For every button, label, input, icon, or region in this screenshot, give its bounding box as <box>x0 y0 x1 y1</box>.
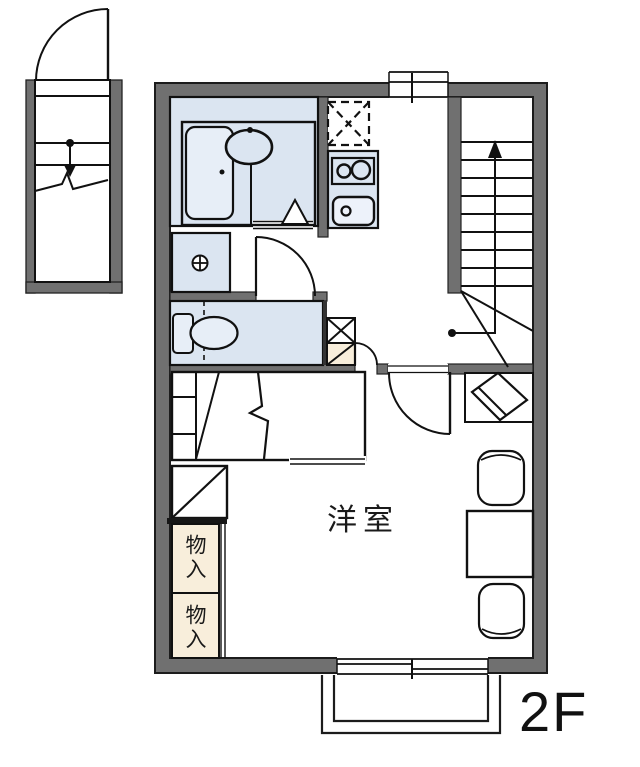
table-icon <box>467 511 533 577</box>
toilet-icon <box>191 317 238 349</box>
winder-step-line <box>461 291 533 331</box>
western-room-entry <box>388 364 450 434</box>
bathtub-icon <box>186 127 233 219</box>
room-label-western: 洋室 <box>327 506 399 536</box>
winder-step-line <box>461 291 508 367</box>
wall-segment <box>110 80 122 293</box>
floor-indicator: 2F <box>519 684 588 740</box>
dining-set <box>467 451 533 638</box>
floor-plan-page: 洋室 物入 物入 2F <box>0 0 640 767</box>
tap-dot <box>247 127 253 133</box>
door-swing-icon <box>256 237 315 296</box>
washroom <box>172 233 315 296</box>
floor-plan-svg <box>0 0 640 767</box>
stairwell-interior <box>35 80 110 282</box>
balcony-outer-rail <box>322 675 500 733</box>
kitchen-sink-icon <box>333 197 374 225</box>
kitchen <box>328 102 378 228</box>
entrance-stair-structure <box>26 9 122 293</box>
washbasin-icon <box>226 130 272 164</box>
stairwell-void <box>172 372 366 464</box>
tv-stand <box>465 373 533 422</box>
wall-segment <box>26 282 122 293</box>
unit-bath <box>170 97 318 230</box>
wall-segment <box>318 97 328 237</box>
staircase-wall <box>448 97 461 293</box>
balcony-inner-rail <box>334 675 488 721</box>
entrance-door-swing-icon <box>36 9 108 81</box>
wall-segment <box>26 80 35 293</box>
opening <box>289 456 366 464</box>
door-swing-icon <box>389 373 450 434</box>
door-swing-icon <box>355 343 377 365</box>
stairwell-box <box>172 372 365 460</box>
wall-segment <box>170 292 256 301</box>
storage-label-2: 物入 <box>184 604 205 652</box>
pipe-space-storage <box>327 318 377 365</box>
tub-knob-dot <box>220 170 225 175</box>
wall-segment <box>377 364 388 374</box>
storage-label-1: 物入 <box>184 534 205 582</box>
balcony <box>322 675 500 733</box>
toilet-room <box>170 301 327 365</box>
